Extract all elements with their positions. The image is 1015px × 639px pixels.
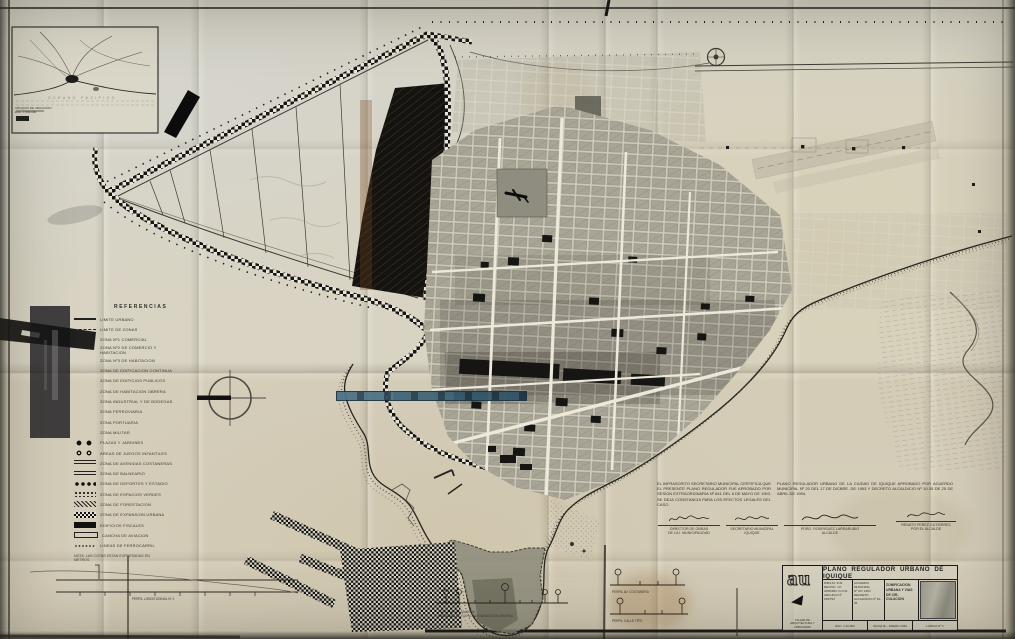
photo-vignette — [0, 0, 1015, 639]
map-photo: { "meta": { "title": "Plano Regulador Ur… — [0, 0, 1015, 639]
